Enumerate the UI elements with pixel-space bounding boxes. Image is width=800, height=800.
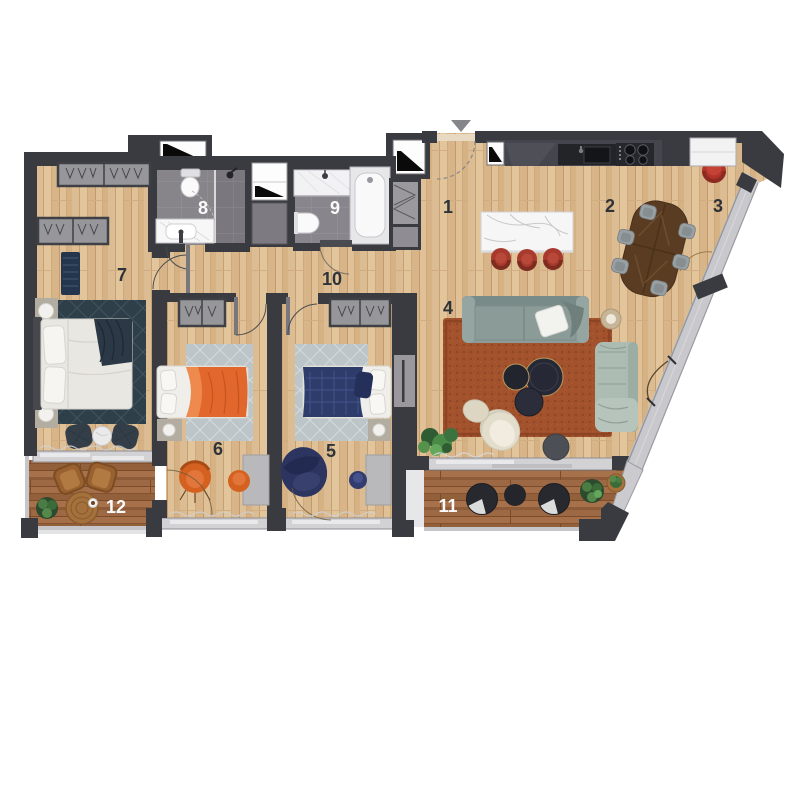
svg-text:7: 7 [117,265,127,285]
svg-text:10: 10 [322,269,342,289]
svg-text:3: 3 [713,196,723,216]
svg-text:11: 11 [438,496,457,516]
svg-text:8: 8 [198,198,208,218]
svg-text:9: 9 [330,198,340,218]
svg-text:1: 1 [443,197,453,217]
svg-text:2: 2 [605,196,615,216]
svg-text:5: 5 [326,441,336,461]
svg-text:12: 12 [106,497,126,517]
svg-text:4: 4 [443,298,453,318]
svg-text:6: 6 [213,439,223,459]
